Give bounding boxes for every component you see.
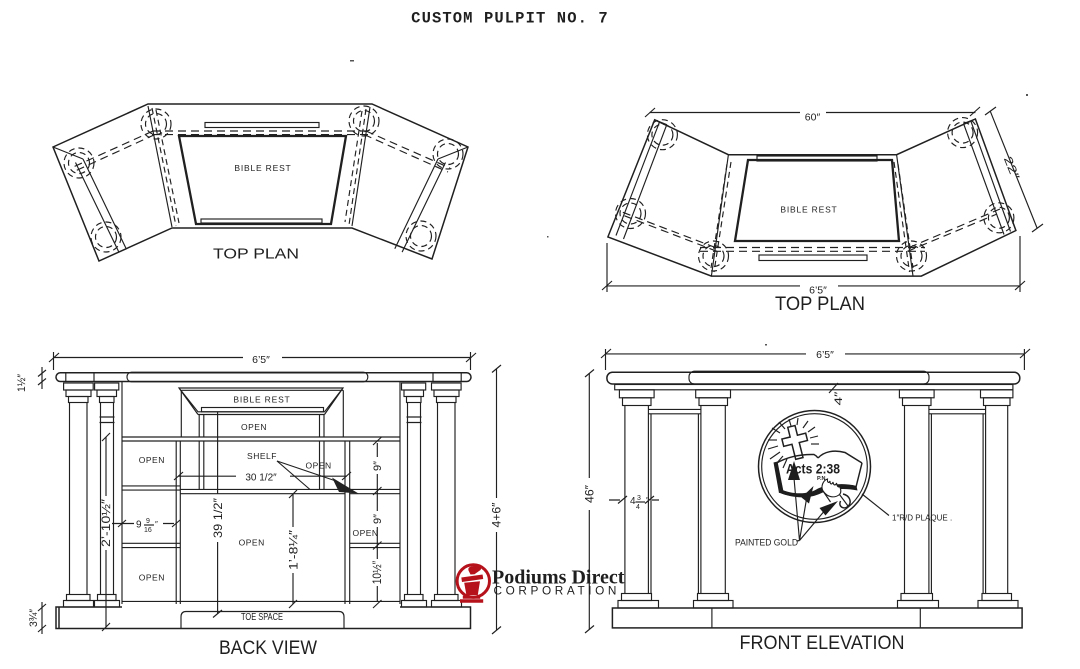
svg-text:CORPORATION: CORPORATION [494, 584, 621, 598]
svg-text:9: 9 [146, 518, 150, 525]
svg-text:3¾″: 3¾″ [28, 609, 40, 627]
svg-text:1″R/D PLAQUE .: 1″R/D PLAQUE . [892, 514, 952, 523]
svg-text:1’-8¼″: 1’-8¼″ [287, 529, 301, 570]
svg-text:OPEN: OPEN [239, 538, 265, 548]
svg-text:OPEN: OPEN [139, 573, 165, 583]
svg-text:TOP PLAN: TOP PLAN [213, 246, 299, 263]
svg-text:30 1/2″: 30 1/2″ [245, 473, 277, 484]
svg-text:BIBLE REST: BIBLE REST [234, 163, 291, 173]
svg-text:4+6″: 4+6″ [490, 502, 504, 528]
svg-text:BIBLE REST: BIBLE REST [233, 395, 290, 405]
svg-text:9″: 9″ [372, 514, 384, 524]
svg-text:2’-10½″: 2’-10½″ [99, 498, 113, 547]
svg-text:16: 16 [144, 527, 152, 534]
svg-text:″: ″ [155, 520, 158, 529]
svg-text:6’5″: 6’5″ [816, 349, 834, 361]
svg-text:″: ″ [646, 496, 649, 505]
svg-text:39 1/2″: 39 1/2″ [211, 497, 225, 538]
svg-text:60″: 60″ [805, 112, 821, 124]
svg-text:FRONT ELEVATION: FRONT ELEVATION [740, 632, 905, 654]
svg-text:46″: 46″ [583, 484, 597, 503]
svg-text:9: 9 [136, 520, 142, 531]
svg-text:BACK VIEW: BACK VIEW [219, 638, 317, 659]
svg-text:PAINTED GOLD: PAINTED GOLD [735, 538, 798, 549]
svg-text:4: 4 [636, 504, 640, 511]
svg-text:TOP PLAN: TOP PLAN [775, 293, 865, 315]
svg-text:3: 3 [637, 495, 641, 502]
svg-text:SHELF: SHELF [247, 451, 277, 461]
svg-text:OPEN: OPEN [306, 461, 332, 471]
svg-text:OPEN: OPEN [352, 528, 378, 538]
svg-text:22″: 22″ [1001, 155, 1021, 182]
svg-text:9″: 9″ [372, 461, 384, 471]
svg-text:10½″: 10½″ [372, 561, 384, 585]
svg-text:4″: 4″ [833, 391, 845, 405]
svg-text:BIBLE REST: BIBLE REST [780, 205, 837, 215]
svg-text:CUSTOM PULPIT NO. 7: CUSTOM PULPIT NO. 7 [411, 10, 609, 28]
svg-text:OPEN: OPEN [241, 422, 267, 432]
svg-text:1½″: 1½″ [16, 374, 28, 392]
svg-text:OPEN: OPEN [139, 455, 165, 465]
svg-text:6’5″: 6’5″ [252, 354, 270, 366]
svg-text:TOE SPACE: TOE SPACE [241, 611, 283, 623]
